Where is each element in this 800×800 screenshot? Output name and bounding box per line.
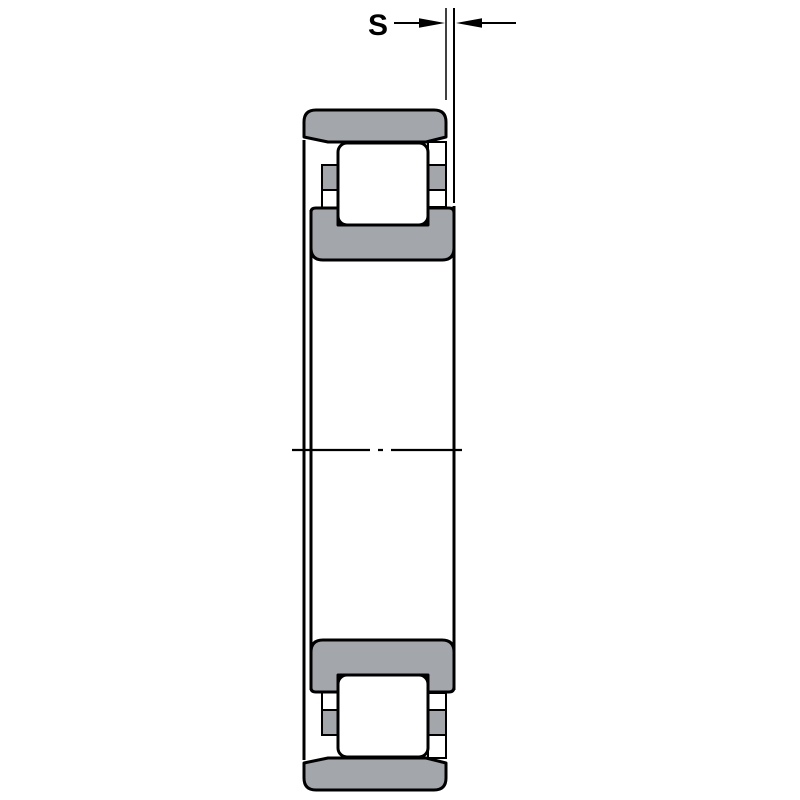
arrowhead-right-icon	[419, 18, 445, 28]
cage-bar-top-right	[428, 165, 446, 190]
roller-bottom	[338, 675, 428, 757]
cage-bar-bottom-left	[322, 710, 338, 735]
roller-top	[338, 143, 428, 225]
dimension-label-s: S	[368, 9, 388, 42]
cage-bar-top-left	[322, 165, 338, 190]
bearing-cross-section-drawing: S	[0, 0, 800, 800]
outer-ring-bottom-section	[304, 758, 446, 790]
outer-ring-top-section	[304, 110, 446, 142]
arrowhead-left-icon	[456, 18, 482, 28]
cage-bar-bottom-right	[428, 710, 446, 735]
